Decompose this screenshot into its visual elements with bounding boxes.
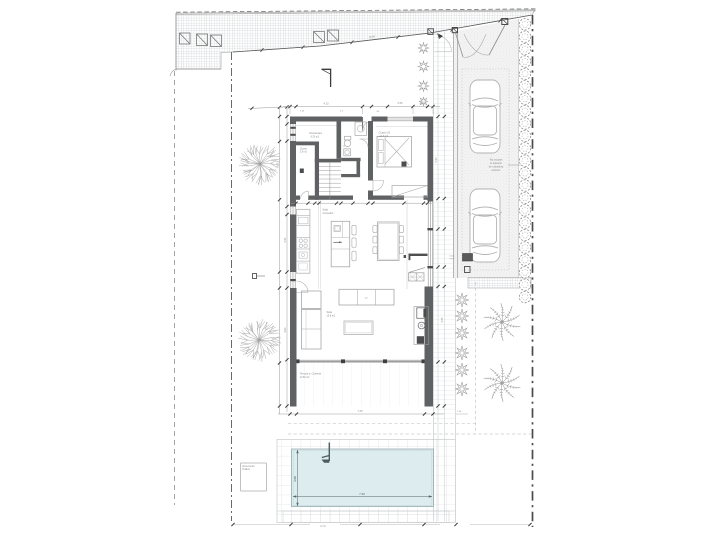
svg-text:exterior: exterior — [492, 168, 501, 172]
svg-text:4.60: 4.60 — [284, 327, 287, 332]
svg-text:Closet: Closet — [300, 148, 307, 151]
svg-text:8.05: 8.05 — [276, 162, 279, 167]
svg-text:5.30: 5.30 — [435, 157, 438, 162]
svg-text:12.9 m2: 12.9 m2 — [380, 135, 389, 138]
svg-text:Prados: Prados — [242, 468, 250, 471]
svg-text:12.60 m2: 12.60 m2 — [300, 377, 310, 379]
svg-text:No ocupan: No ocupan — [490, 158, 503, 162]
svg-text:4.10: 4.10 — [323, 102, 329, 106]
svg-text:7.25: 7.25 — [357, 409, 363, 413]
svg-text:Cuarto 01: Cuarto 01 — [379, 131, 391, 135]
svg-text:de maniobra: de maniobra — [489, 165, 504, 169]
svg-text:4.25: 4.25 — [441, 317, 444, 322]
svg-text:1.20: 1.20 — [419, 101, 425, 105]
svg-text:Terraza p. Cubierta: Terraza p. Cubierta — [300, 373, 322, 376]
svg-text:el espacio: el espacio — [490, 161, 502, 165]
svg-text:3.00: 3.00 — [293, 476, 297, 482]
svg-text:Recamara: Recamara — [310, 131, 323, 135]
svg-text:15.8 m2: 15.8 m2 — [327, 314, 336, 317]
svg-text:TV: TV — [364, 296, 368, 300]
svg-text:Sala: Sala — [327, 310, 333, 314]
svg-text:3.95: 3.95 — [284, 237, 287, 242]
svg-text:Comedor: Comedor — [323, 211, 334, 215]
svg-text:2.55: 2.55 — [397, 101, 403, 105]
svg-text:9.20 m2: 9.20 m2 — [311, 135, 320, 138]
svg-text:7.60: 7.60 — [359, 492, 365, 496]
svg-text:2.9 m2: 2.9 m2 — [300, 152, 308, 154]
